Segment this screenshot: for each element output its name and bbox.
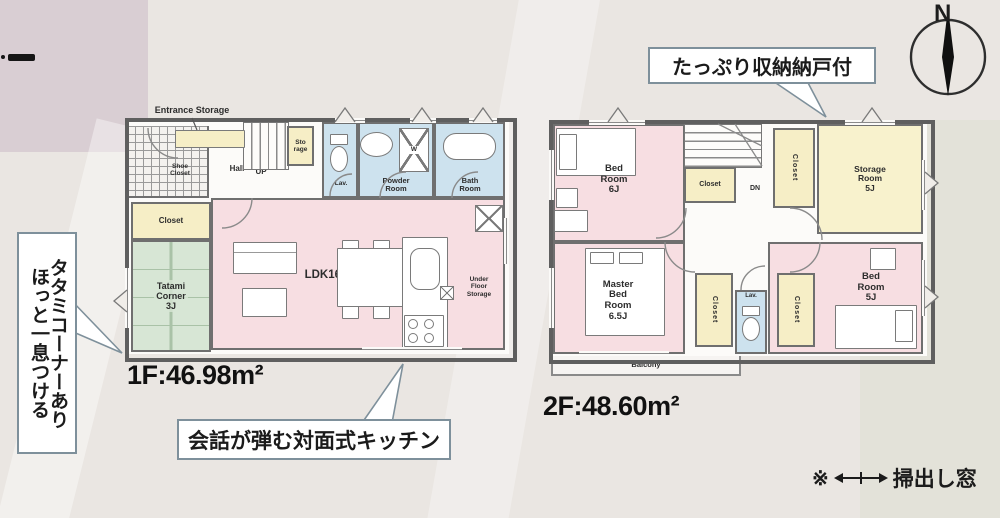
stairs-down-label: DN (743, 183, 767, 194)
toilet-bowl (330, 146, 348, 172)
note-text: 掃出し窓 (893, 463, 977, 493)
compass-north-label: N (934, 0, 951, 28)
window-gap (845, 120, 895, 125)
floor-2-plan: Bed Room 6J Closet DN Closet Storage Roo… (549, 120, 927, 378)
double-arrow-icon (833, 470, 889, 486)
stove-burner (408, 319, 418, 329)
toilet-tank (742, 306, 760, 316)
underfloor-label: Under Floor Storage (452, 270, 506, 304)
window-gap (579, 351, 669, 356)
window-gap (335, 118, 365, 123)
stairs-up (243, 122, 289, 170)
dining-chair (373, 306, 390, 319)
window-gap (125, 268, 130, 328)
kitchen-sink (410, 248, 440, 290)
entrance-storage-shelf (175, 130, 245, 148)
window-gap (549, 268, 554, 328)
pillow (590, 252, 614, 264)
washer-pan: W (399, 128, 429, 172)
master-bedroom-label: Master Bed Room 6.5J (586, 274, 650, 328)
room-storage-1f: Sto rage (287, 126, 314, 166)
sliding-window-note: ※ 掃出し窓 (812, 463, 977, 493)
stray-dot (1, 55, 5, 59)
bedroom-5j-label: Bed Room 5J (843, 266, 899, 310)
powder-label: Powder Room (372, 174, 420, 196)
floorplan-page: Shoe Closet Hall UP Sto rage Lav. W Powd… (0, 0, 1000, 518)
stove-burner (424, 333, 434, 343)
floor-1-area-label: 1F:46.98m² (127, 360, 263, 391)
pillow (559, 134, 577, 170)
storage-callout: たっぷり収納納戸付 (648, 47, 876, 84)
pillow (619, 252, 643, 264)
compass-circle (911, 20, 985, 94)
floor-1-plan: Shoe Closet Hall UP Sto rage Lav. W Powd… (125, 118, 509, 354)
window-gap (922, 260, 927, 316)
note-asterisk: ※ (812, 466, 829, 491)
washer-label: W (410, 146, 418, 153)
powder-sink (360, 132, 393, 157)
toilet-bowl (742, 317, 760, 341)
kitchen-callout: 会話が弾む対面式キッチン (177, 419, 451, 460)
dining-table (337, 248, 404, 307)
shoe-closet-label: Shoe Closet (152, 158, 208, 182)
lav-1f-label: Lav. (324, 178, 358, 189)
storage-1f-label: Sto rage (294, 139, 308, 154)
closet-label: Closet (790, 154, 798, 181)
kitchen-callout-text: 会話が弾む対面式キッチン (188, 425, 440, 455)
floor-2-area-label: 2F:48.60m² (543, 391, 679, 422)
lav-2f-label: Lav. (737, 291, 765, 301)
window-gap (469, 118, 497, 123)
closet-2f-hall: Closet (684, 167, 736, 203)
bedroom-6j-label: Bed Room 6J (583, 158, 645, 202)
closet-label: Closet (792, 296, 800, 323)
bath-label: Bath Room (448, 174, 492, 196)
window-gap (410, 118, 436, 123)
stove-burner (408, 333, 418, 343)
closet-1f-label: Closet (159, 217, 183, 226)
stray-dash (8, 54, 35, 61)
room-storage-5j: Storage Room 5J (817, 124, 923, 234)
stove-burner (424, 319, 434, 329)
balcony-label: Balcony (631, 361, 660, 369)
desk (554, 210, 588, 232)
nightstand (556, 188, 578, 208)
window-gap (504, 218, 509, 264)
closet-label: Closet (710, 296, 718, 323)
window-gap (362, 347, 462, 353)
coffee-table (242, 288, 287, 317)
tatami-callout-text-1: ほっと一息つける (29, 267, 48, 419)
toilet-tank (330, 134, 348, 145)
closet-label: Closet (699, 181, 720, 189)
closet-bedroom-5j: Closet (777, 273, 815, 347)
bathtub (443, 133, 496, 160)
balcony: Balcony (551, 356, 741, 376)
tatami-label: Tatami Corner 3J (154, 280, 188, 312)
window-gap (549, 150, 554, 200)
vent-box (475, 205, 503, 232)
room-tatami-corner: Tatami Corner 3J (131, 240, 211, 352)
window-gap (922, 160, 927, 210)
tatami-callout-text-2: タタミコーナーあり (48, 258, 67, 429)
callout-tail-kitchen (362, 364, 403, 423)
window-gap (589, 120, 645, 125)
storage-5j-label: Storage Room 5J (854, 165, 886, 194)
callout-tail-storage (770, 79, 826, 117)
tatami-callout: ほっと一息つける タタミコーナーあり (17, 232, 77, 454)
entrance-storage-label: Entrance Storage (140, 104, 244, 117)
stairs-down (684, 124, 762, 168)
closet-master: Closet (695, 273, 733, 347)
pillow (895, 310, 913, 342)
closet-2f-storage-side: Closet (773, 128, 815, 208)
storage-callout-text: たっぷり収納納戸付 (672, 51, 852, 80)
room-closet-1f: Closet (131, 202, 211, 240)
dining-chair (342, 306, 359, 319)
sofa (233, 242, 297, 274)
